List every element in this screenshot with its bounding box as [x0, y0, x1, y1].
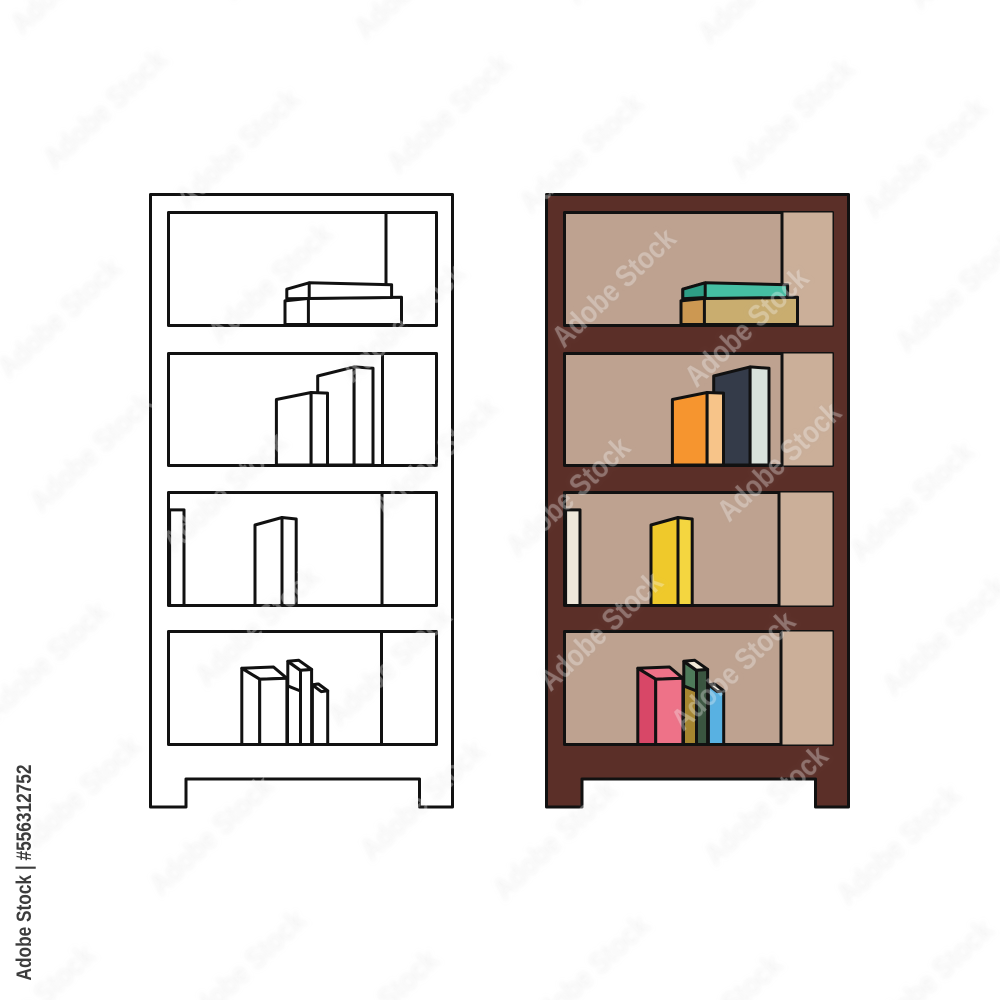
svg-text:Adobe Stock | #556312752: Adobe Stock | #556312752 [13, 765, 36, 981]
